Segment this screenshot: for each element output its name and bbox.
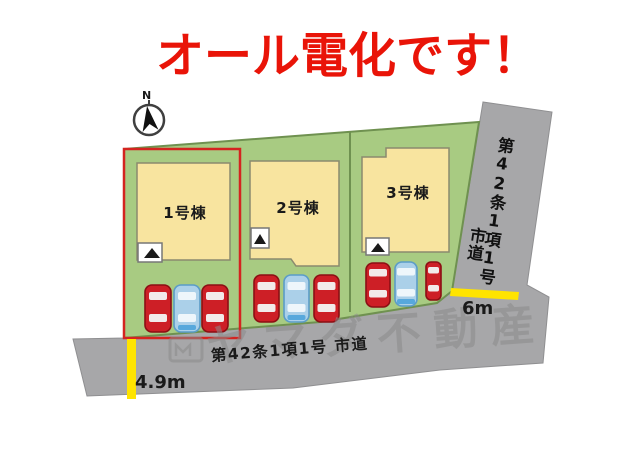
road-right-width-label: 6m: [462, 300, 493, 318]
entrance-marker-3: [366, 238, 389, 255]
north-compass: [134, 100, 164, 135]
building-3-label: 3号棟: [377, 186, 439, 201]
entrance-marker-1: [138, 243, 162, 262]
compass-needle-icon: [139, 105, 158, 132]
building-2-label: 2号棟: [267, 201, 329, 216]
site-plan-page: ヤマダ不動産 オール電化です！ N 1号棟 2号棟 3号棟 第42条1項1号 市…: [0, 0, 640, 453]
car-blue: [174, 285, 200, 332]
page-title: オール電化です！: [138, 30, 558, 83]
road-bottom-width-label: 4.9m: [135, 374, 186, 392]
entrance-marker-2: [251, 228, 269, 248]
car-red: [145, 285, 171, 332]
compass-n-label: N: [142, 90, 151, 101]
building-1-label: 1号棟: [154, 206, 216, 221]
